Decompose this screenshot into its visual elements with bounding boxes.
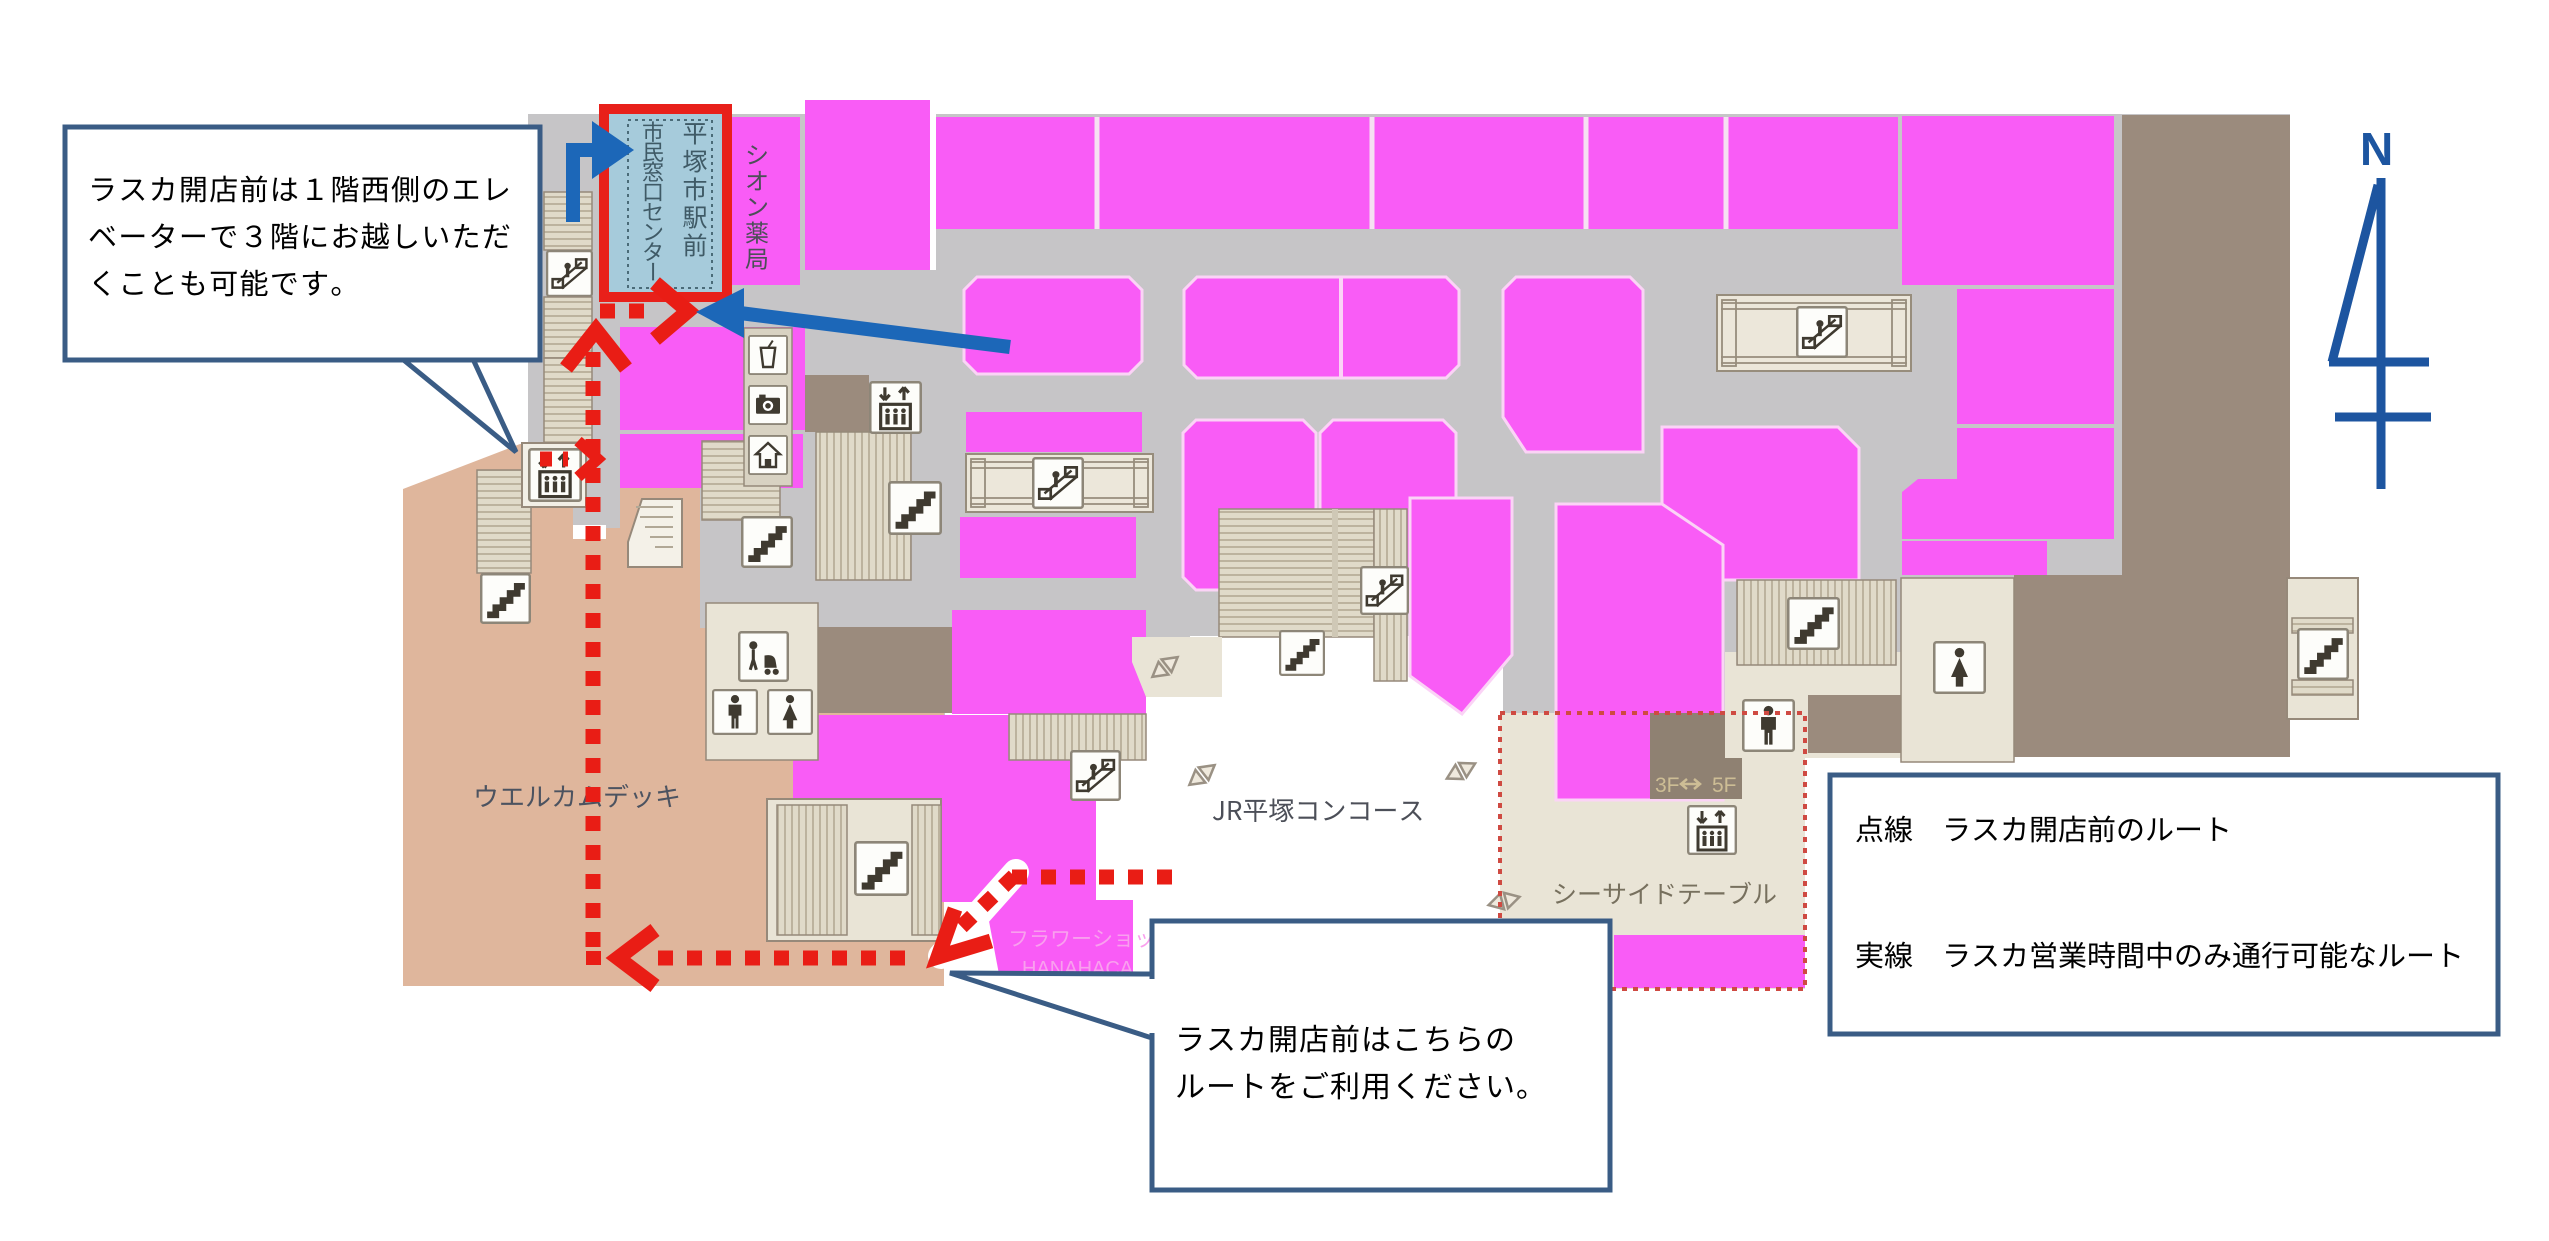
svg-text:5F: 5F [1712, 774, 1737, 797]
svg-text:3F: 3F [1655, 774, 1680, 797]
svg-text:N: N [2360, 123, 2393, 175]
